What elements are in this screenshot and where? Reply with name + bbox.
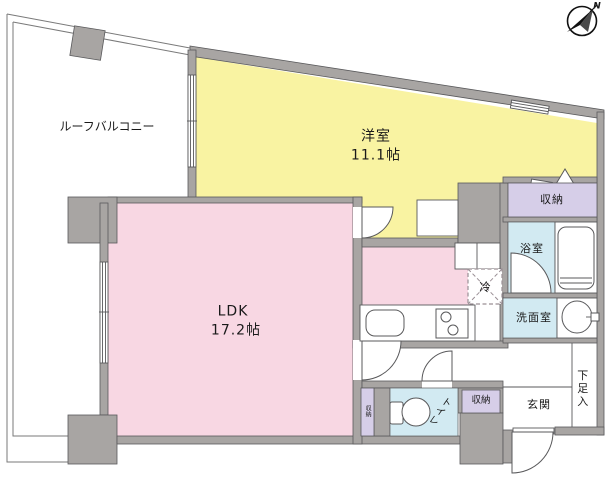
- floor-plan: ルーフバルコニー 洋室 11.1帖 LDK 17.2帖 収納 浴室 洗面室 玄関…: [0, 0, 611, 488]
- entry-area: [503, 343, 572, 427]
- kitchen-counter: [360, 305, 475, 341]
- toilet-door: [422, 351, 452, 381]
- kitchen-nook: [417, 200, 458, 236]
- closet-top-label: 収納: [540, 194, 564, 206]
- window-ldk: [99, 262, 109, 363]
- balcony-label: ルーフバルコニー: [59, 121, 154, 134]
- entrance-label: 玄関: [527, 399, 551, 411]
- closet-strip-label: 収納: [364, 405, 370, 417]
- ldk-label: LDK: [218, 305, 249, 320]
- closet-hall-label: 収納: [471, 396, 490, 406]
- western-room-size: 11.1帖: [351, 149, 401, 164]
- window-western-room: [187, 75, 197, 167]
- shoe-cabinet-label: 下足入: [576, 370, 588, 409]
- refrigerator-label: 冷: [479, 281, 491, 293]
- hallway-door: [362, 341, 401, 380]
- entrance-door: [512, 432, 553, 473]
- washroom-label: 洗面室: [516, 312, 552, 324]
- western-room-label: 洋室: [361, 130, 391, 145]
- toilet-room: [390, 388, 458, 436]
- kitchen-cabinet: [455, 243, 500, 269]
- compass-north-label: N: [593, 2, 601, 11]
- bathtub: [558, 227, 594, 289]
- bathroom-label: 浴室: [520, 243, 544, 255]
- ldk-size: 17.2帖: [211, 324, 261, 339]
